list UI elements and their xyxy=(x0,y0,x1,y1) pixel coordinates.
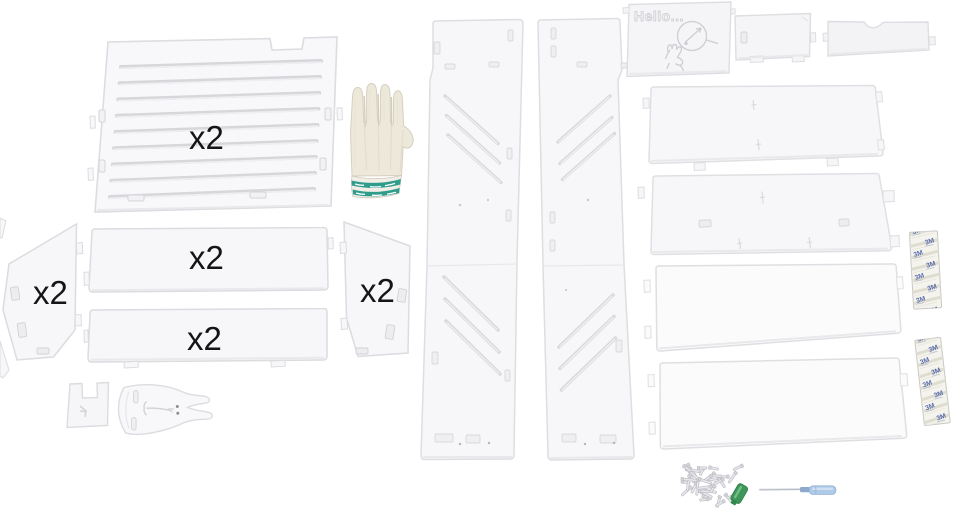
svg-text:x2: x2 xyxy=(33,274,68,311)
svg-text:x2: x2 xyxy=(360,272,395,309)
svg-text:x2: x2 xyxy=(189,119,224,156)
svg-text:Hello...: Hello... xyxy=(634,8,684,24)
svg-text:x2: x2 xyxy=(189,239,224,276)
svg-text:x2: x2 xyxy=(187,320,222,357)
